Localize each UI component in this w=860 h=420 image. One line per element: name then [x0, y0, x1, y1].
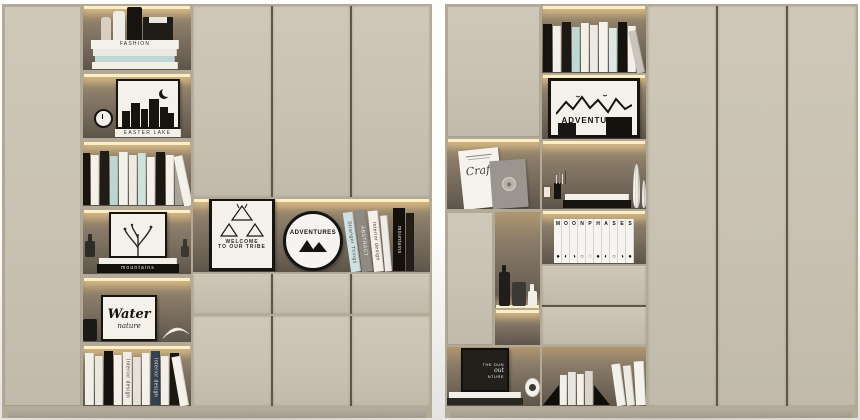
book-spine — [156, 152, 165, 205]
moon-binder-spine: H● — [594, 219, 602, 263]
drawer-1 — [193, 274, 271, 314]
right-cabinet-tall-doors — [648, 6, 856, 406]
poster-line-2: out — [494, 367, 504, 374]
led-strip — [543, 141, 645, 144]
mountain-ridge-icon — [556, 92, 632, 116]
water-script: Water — [108, 307, 151, 322]
colB-bottom-niche — [542, 347, 646, 406]
white-label-box — [149, 17, 167, 23]
upper-door-1 — [193, 6, 271, 197]
mountains-book-stack: mountains — [97, 258, 179, 273]
right-cabinet-plinth — [451, 408, 852, 418]
bookend-right-icon — [594, 385, 610, 405]
colB-drawer-2 — [542, 307, 646, 346]
book-spine: mountains — [393, 208, 405, 271]
led-strip — [543, 211, 645, 214]
upper-door-2 — [273, 6, 351, 197]
black-tall-box — [127, 7, 142, 41]
tall-door-1 — [648, 6, 716, 406]
city-skyline-moon-icon — [120, 85, 176, 127]
book-spine: FASHION — [91, 40, 179, 49]
white-vase — [113, 11, 125, 41]
moon-binder-spine: S● — [626, 219, 634, 263]
colA-bottom-niche: THE OUN out NTURE — [447, 347, 540, 406]
book-spine — [95, 356, 103, 405]
left-cabinet-drawers — [193, 274, 430, 314]
cream-vase — [101, 17, 111, 41]
shelf-niche-water-art: Water nature — [83, 278, 191, 342]
book-spine — [577, 374, 584, 405]
tall-door-2 — [718, 6, 786, 406]
colB-drawers — [542, 266, 646, 345]
book-spine: mountains — [97, 264, 179, 273]
branch-icon — [113, 218, 163, 256]
book-spine — [581, 23, 589, 72]
black-box-large — [606, 117, 632, 138]
tall-door-3 — [788, 6, 856, 406]
book-spine — [406, 213, 414, 271]
black-box-small — [558, 123, 576, 138]
moon-phases-binders: M●O◐O◑N○P◌H●A◐S○E◑S● — [554, 219, 634, 263]
pencil-cup — [554, 183, 561, 199]
white-bottle — [528, 291, 537, 306]
plate-mountains-icon — [295, 236, 331, 252]
posterA-book-stack — [447, 392, 523, 405]
tribe-artwork: WELCOME TO OUR TRIBE — [209, 199, 275, 271]
upper-door-3 — [352, 6, 430, 197]
dark-vase — [85, 241, 95, 257]
book-spine — [92, 62, 178, 69]
book-spine — [114, 355, 122, 405]
led-strip — [448, 139, 539, 142]
tribe-text: TO OUR TRIBE — [218, 245, 266, 250]
book-spine — [609, 28, 617, 72]
drawer-3 — [352, 274, 430, 314]
moon-binder-spine: P◌ — [586, 219, 594, 263]
shelf-niche-plant-art: mountains — [83, 210, 191, 274]
book-spine — [91, 155, 99, 205]
colA-narrow-door — [447, 212, 493, 345]
book-spine — [572, 27, 580, 72]
book-spine — [585, 371, 593, 405]
book-spine — [633, 361, 645, 405]
moon-binder-spine: A◐ — [602, 219, 610, 263]
book-row-3 — [543, 22, 645, 72]
book-spine — [560, 375, 567, 405]
fashion-book-stack: FASHION — [91, 40, 179, 69]
book-spine — [110, 156, 118, 205]
middle-niche-books: Stranger ThingsABSTRACTInterior designmo… — [351, 208, 414, 271]
book-spine: Interior design — [123, 352, 132, 405]
colA-magazine-niche: Craft ◉ — [447, 139, 540, 209]
book-spine — [563, 200, 631, 208]
colB-drawer-1 — [542, 266, 646, 305]
book-row-2: Interior designInterior design — [85, 351, 189, 405]
book-spine — [133, 357, 141, 405]
moon-binder-spine: O◑ — [570, 219, 578, 263]
moon-binder-spine: O◐ — [562, 219, 570, 263]
book-spine — [447, 398, 523, 405]
led-strip — [84, 142, 190, 145]
led-strip — [496, 310, 539, 313]
book-spine — [142, 353, 150, 405]
black-bottle-short — [512, 282, 526, 306]
shelf-niche-fashion: FASHION — [83, 6, 191, 70]
book-spine: EASTER LAKE — [115, 129, 181, 137]
book-spine — [568, 372, 576, 405]
nature-script: nature — [117, 322, 141, 330]
right-cabinet: Craft ◉ — [445, 4, 858, 418]
black-bottle-tall — [499, 272, 510, 306]
book-spine — [543, 24, 552, 72]
lower-door-3 — [352, 316, 430, 406]
moon-binder-spine: N○ — [578, 219, 586, 263]
colA-top-door — [447, 6, 540, 137]
bookend-books — [560, 371, 593, 405]
led-strip — [543, 6, 645, 9]
book-spine — [590, 25, 598, 72]
scene: FASHION — [0, 0, 860, 420]
book-spine — [85, 353, 94, 405]
book-spine — [161, 356, 169, 405]
book-spine — [166, 155, 174, 205]
moon-binder-spine: S○ — [610, 219, 618, 263]
led-strip — [84, 346, 190, 349]
book-spine — [83, 153, 90, 205]
dark-typography-poster: THE OUN out NTURE — [461, 348, 509, 392]
city-moon-artwork — [116, 79, 180, 129]
leaning-books — [617, 361, 646, 405]
easter-lake-book: EASTER LAKE — [115, 129, 181, 137]
left-cabinet: FASHION — [2, 4, 432, 418]
left-cabinet-plinth — [8, 408, 426, 418]
book-spine — [147, 157, 155, 205]
book-spine: Interior design — [151, 351, 160, 405]
colB-adventure-niche: ADVENTURES — [542, 75, 646, 139]
led-strip — [84, 74, 190, 77]
dark-vase-small — [181, 246, 189, 257]
left-cabinet-lower-doors — [193, 316, 430, 406]
moon-binder-spine: M● — [554, 219, 562, 263]
lower-door-1 — [193, 316, 271, 406]
adventures-plate: ADVENTURES — [283, 211, 343, 271]
book-spine — [599, 22, 608, 72]
middle-display-niche: WELCOME TO OUR TRIBE ADVENTURES Stranger… — [193, 199, 430, 272]
disc-center — [529, 384, 536, 391]
ribbed-vase-tall — [633, 164, 640, 208]
book-spine — [618, 22, 627, 72]
bookend-left-icon — [543, 385, 559, 405]
book-spine — [129, 155, 137, 205]
vase-book-stack — [563, 194, 631, 208]
shelf-niche-books-1 — [83, 142, 191, 206]
water-typography-art: Water nature — [101, 295, 157, 341]
logo-disc: ◉ — [501, 177, 516, 192]
mini-niche — [495, 310, 540, 345]
gray-magazine: ◉ — [489, 159, 528, 209]
bottle-niche — [495, 212, 540, 308]
teepee-icon — [217, 204, 267, 238]
alarm-clock — [94, 109, 113, 128]
shelf-niche-moon-art: EASTER LAKE — [83, 74, 191, 138]
colB-moon-phases-niche: M●O◐O◑N○P◌H●A◐S○E◑S● — [542, 211, 646, 264]
book-row-1 — [83, 151, 191, 205]
left-cabinet-upper-doors — [193, 6, 430, 197]
black-speaker — [83, 319, 97, 341]
book-spine — [119, 152, 128, 205]
white-disc — [525, 378, 540, 397]
small-photo-frame — [542, 185, 552, 199]
book-spine — [93, 49, 177, 56]
shelf-niche-books-2: Interior designInterior design — [83, 346, 191, 406]
book-spine — [100, 151, 109, 205]
book-spine — [553, 26, 561, 72]
book-spine — [138, 153, 146, 205]
left-cabinet-tall-door — [4, 6, 81, 406]
colB-books-niche — [542, 6, 646, 73]
ribbed-vase-small — [642, 180, 646, 208]
poster-line-3: NTURE — [488, 374, 504, 379]
moon-binder-spine: E◑ — [618, 219, 626, 263]
book-spine — [104, 351, 113, 405]
book-spine — [562, 22, 571, 72]
branch-artwork — [109, 212, 167, 258]
lower-door-2 — [273, 316, 351, 406]
colB-vase-niche — [542, 141, 646, 209]
drawer-2 — [273, 274, 351, 314]
led-strip — [84, 278, 190, 281]
white-horn-sculpture — [161, 325, 191, 341]
